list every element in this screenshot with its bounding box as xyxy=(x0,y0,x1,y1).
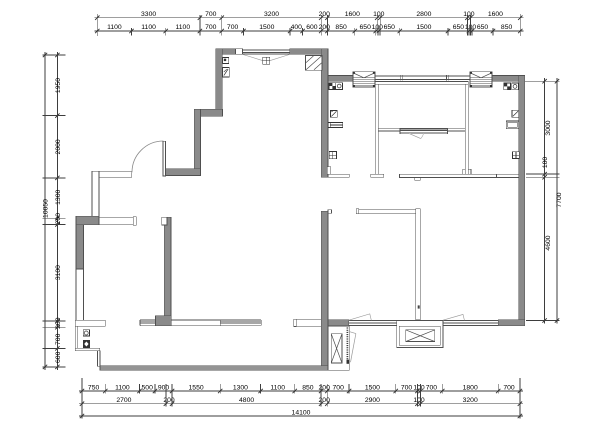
svg-text:700: 700 xyxy=(205,11,217,18)
svg-text:200: 200 xyxy=(319,24,331,31)
svg-text:650: 650 xyxy=(477,24,489,31)
svg-text:3100: 3100 xyxy=(55,265,62,280)
svg-text:2900: 2900 xyxy=(365,397,380,404)
svg-text:7700: 7700 xyxy=(556,192,563,207)
svg-text:1100: 1100 xyxy=(141,24,156,31)
svg-text:1950: 1950 xyxy=(55,78,62,93)
svg-text:700: 700 xyxy=(503,384,515,391)
svg-text:2000: 2000 xyxy=(55,139,62,154)
svg-text:500: 500 xyxy=(142,384,154,391)
svg-text:1500: 1500 xyxy=(365,384,380,391)
svg-text:400: 400 xyxy=(291,24,303,31)
svg-text:4600: 4600 xyxy=(545,235,552,250)
svg-text:600: 600 xyxy=(306,24,318,31)
svg-text:3000: 3000 xyxy=(545,120,552,135)
svg-text:1550: 1550 xyxy=(189,384,204,391)
svg-text:650: 650 xyxy=(360,24,372,31)
svg-text:100: 100 xyxy=(542,157,549,169)
svg-text:3300: 3300 xyxy=(141,11,156,18)
svg-text:100: 100 xyxy=(413,397,425,404)
svg-text:2800: 2800 xyxy=(416,11,431,18)
svg-text:3200: 3200 xyxy=(264,11,279,18)
svg-text:1100: 1100 xyxy=(175,24,190,31)
svg-text:1100: 1100 xyxy=(107,24,122,31)
svg-text:1600: 1600 xyxy=(345,11,360,18)
svg-text:14100: 14100 xyxy=(292,409,311,416)
svg-text:2700: 2700 xyxy=(116,397,131,404)
svg-text:200: 200 xyxy=(163,397,175,404)
svg-text:1300: 1300 xyxy=(233,384,248,391)
svg-text:1300: 1300 xyxy=(55,190,62,205)
svg-text:650: 650 xyxy=(384,24,396,31)
svg-text:10050: 10050 xyxy=(43,199,50,218)
svg-text:700: 700 xyxy=(227,24,239,31)
svg-text:900: 900 xyxy=(158,384,170,391)
svg-text:1500: 1500 xyxy=(416,24,431,31)
svg-text:700: 700 xyxy=(205,24,217,31)
svg-text:850: 850 xyxy=(501,24,513,31)
svg-text:1800: 1800 xyxy=(463,384,478,391)
svg-text:200: 200 xyxy=(319,11,331,18)
svg-text:1500: 1500 xyxy=(259,24,274,31)
svg-text:200: 200 xyxy=(319,397,331,404)
svg-text:700: 700 xyxy=(401,384,413,391)
svg-text:100: 100 xyxy=(413,384,425,391)
svg-text:700: 700 xyxy=(55,333,62,345)
svg-text:3200: 3200 xyxy=(463,397,478,404)
svg-text:700: 700 xyxy=(333,384,345,391)
svg-text:1600: 1600 xyxy=(488,11,503,18)
svg-text:200: 200 xyxy=(319,384,331,391)
svg-text:1100: 1100 xyxy=(115,384,130,391)
svg-text:650: 650 xyxy=(453,24,465,31)
svg-text:700: 700 xyxy=(426,384,438,391)
svg-text:850: 850 xyxy=(302,384,314,391)
svg-text:100: 100 xyxy=(463,11,475,18)
svg-text:600: 600 xyxy=(55,351,62,363)
svg-text:4800: 4800 xyxy=(239,397,254,404)
svg-text:1100: 1100 xyxy=(270,384,285,391)
svg-text:100: 100 xyxy=(373,11,385,18)
svg-text:850: 850 xyxy=(335,24,347,31)
svg-text:750: 750 xyxy=(88,384,100,391)
